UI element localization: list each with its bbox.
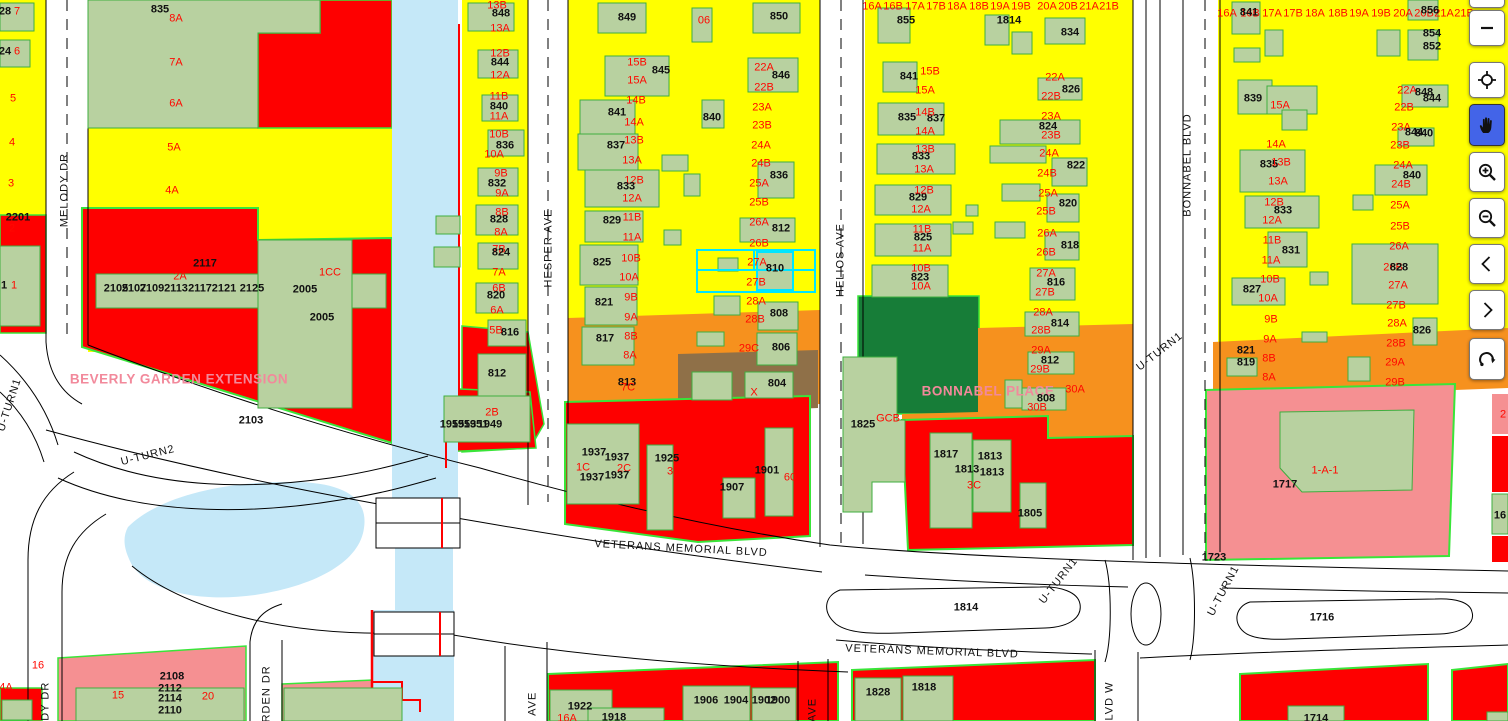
partial-top-button[interactable] xyxy=(1469,0,1505,8)
hand-icon xyxy=(1477,115,1497,135)
refresh-button[interactable] xyxy=(1469,338,1505,380)
locate-button[interactable] xyxy=(1469,62,1505,98)
zoom-out-button[interactable] xyxy=(1469,198,1505,238)
minus-button[interactable] xyxy=(1469,10,1505,46)
zoom-out-icon xyxy=(1477,208,1497,228)
pan-button[interactable] xyxy=(1469,104,1505,146)
minus-icon xyxy=(1477,18,1497,38)
chevron-right-icon xyxy=(1477,300,1497,320)
next-extent-button[interactable] xyxy=(1469,290,1505,330)
chevron-left-icon xyxy=(1477,254,1497,274)
zoom-in-button[interactable] xyxy=(1469,152,1505,192)
zoom-in-icon xyxy=(1477,162,1497,182)
crosshair-icon xyxy=(1477,70,1497,90)
prev-extent-button[interactable] xyxy=(1469,244,1505,284)
map-graphics xyxy=(0,0,1508,721)
map-canvas[interactable]: 8358A7A6A5A4A287246543220121121172A21052… xyxy=(0,0,1508,721)
refresh-icon xyxy=(1476,348,1498,370)
